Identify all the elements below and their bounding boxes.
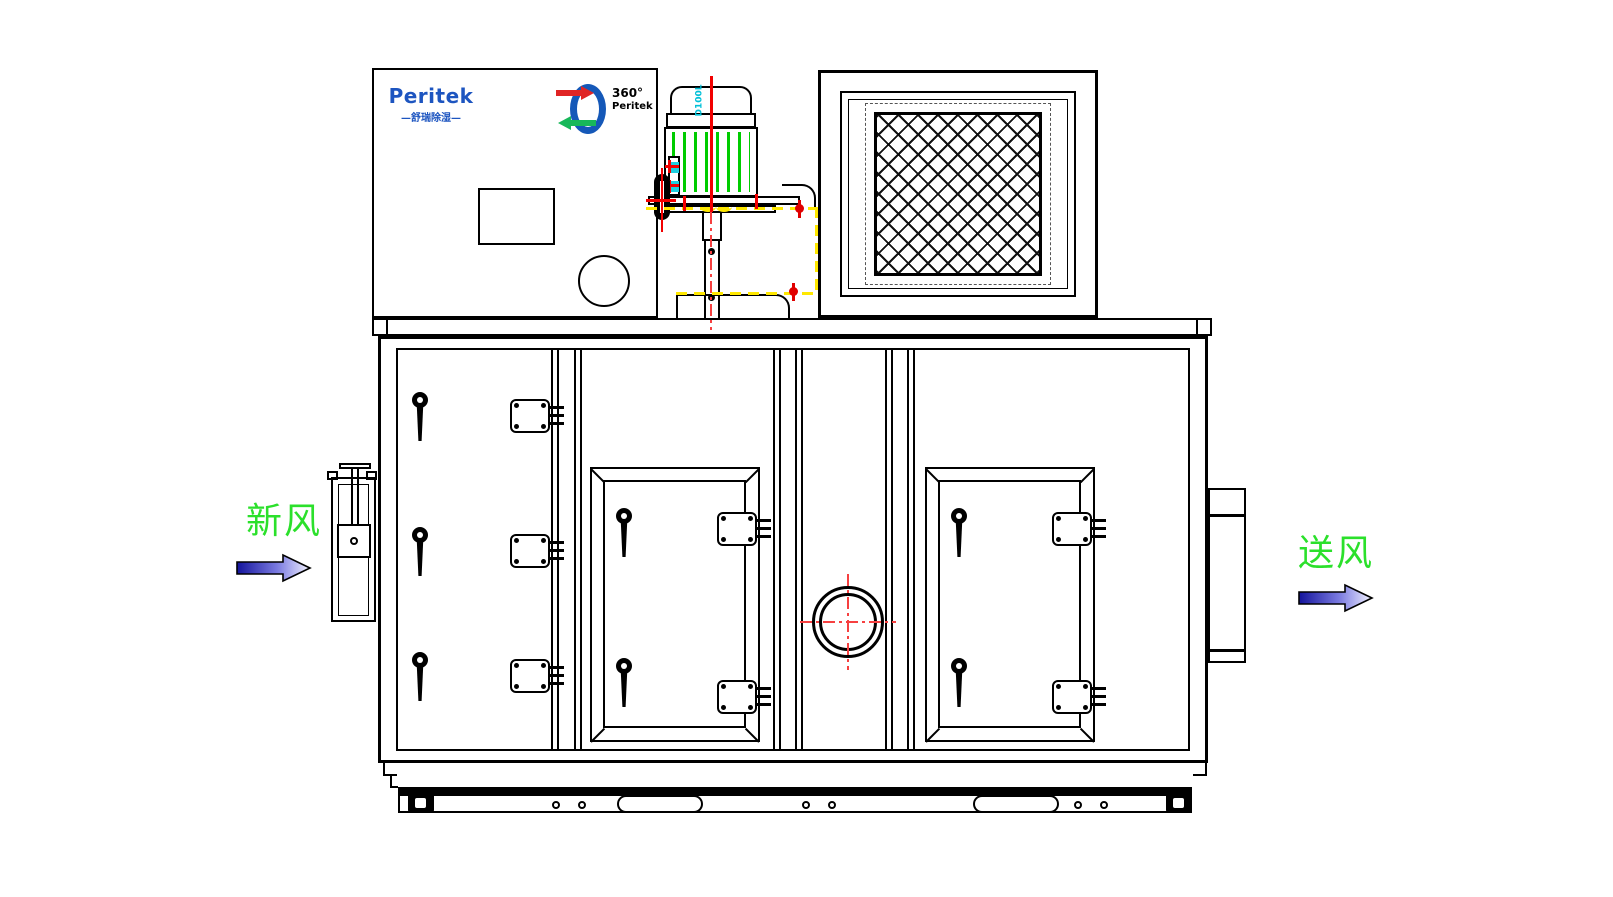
red-tick-base-left bbox=[683, 196, 686, 211]
hinge-block bbox=[510, 399, 550, 433]
anchor-hole bbox=[1074, 801, 1082, 809]
drive-shaft-housing bbox=[702, 211, 722, 241]
latch-handle bbox=[412, 652, 428, 702]
hinge-block bbox=[1052, 680, 1092, 714]
red-bolt-top bbox=[795, 200, 804, 222]
latch-handle bbox=[616, 508, 632, 558]
brand-tagline: —舒瑞除湿— bbox=[386, 109, 476, 124]
damper-flange-right bbox=[366, 471, 377, 480]
dehumidifier-elevation-drawing: Peritek —舒瑞除湿— 360° Peritek D100L bbox=[0, 0, 1613, 897]
latch-handle bbox=[412, 527, 428, 577]
motor-centerline-solid bbox=[710, 76, 713, 212]
hinge-block bbox=[510, 659, 550, 693]
fresh-air-arrow-icon bbox=[236, 552, 312, 584]
cyan-marker-lower bbox=[671, 181, 679, 192]
red-bolt-bottom bbox=[789, 283, 798, 305]
port-centerline-vertical bbox=[847, 574, 849, 670]
divider-line bbox=[580, 350, 582, 749]
brand-logo: Peritek —舒瑞除湿— bbox=[386, 84, 476, 124]
divider-line bbox=[801, 350, 803, 749]
forklift-slot-right bbox=[973, 795, 1059, 813]
filter-mesh bbox=[874, 112, 1042, 276]
outlet-duct-flange-bottom bbox=[1208, 649, 1246, 652]
foot-bracket-right-hole bbox=[1173, 798, 1184, 808]
cabinet-top-rail bbox=[372, 318, 1212, 336]
rotor-degrees-label: 360° bbox=[612, 86, 643, 100]
belt-arc-left bbox=[700, 202, 716, 212]
base-step-left-2 bbox=[390, 776, 398, 788]
anchor-hole bbox=[802, 801, 810, 809]
red-tick-base-right bbox=[755, 194, 758, 209]
latch-handle bbox=[616, 658, 632, 708]
brand-name: Peritek bbox=[386, 84, 476, 108]
hinge-block bbox=[1052, 512, 1092, 546]
belt-arc-right bbox=[716, 202, 732, 212]
red-tick-v1 bbox=[668, 160, 671, 173]
rotor-brand-label: Peritek bbox=[612, 101, 653, 112]
divider-line bbox=[891, 350, 893, 749]
outlet-duct-flange-top bbox=[1208, 514, 1246, 517]
divider-line bbox=[779, 350, 781, 749]
damper-actuator-hole bbox=[350, 537, 358, 545]
motor-model-label: D100L bbox=[695, 81, 706, 117]
divider-line bbox=[795, 350, 797, 749]
base-rail bbox=[398, 796, 1192, 813]
rotor-outlet-arrow-icon bbox=[556, 116, 596, 130]
hinge-block bbox=[510, 534, 550, 568]
tension-handle-cross-tick bbox=[646, 199, 676, 202]
divider-line bbox=[773, 350, 775, 749]
top-rail-end-tab-left bbox=[372, 318, 388, 336]
divider-line bbox=[913, 350, 915, 749]
motor-centerline-dashed bbox=[710, 212, 712, 330]
forklift-slot-left bbox=[617, 795, 703, 813]
control-box-outline bbox=[478, 188, 555, 245]
divider-line bbox=[574, 350, 576, 749]
divider-line bbox=[907, 350, 909, 749]
latch-handle bbox=[951, 658, 967, 708]
latch-handle bbox=[951, 508, 967, 558]
anchor-hole bbox=[578, 801, 586, 809]
inspection-port-circle bbox=[578, 255, 630, 307]
base-step-right-1 bbox=[1193, 763, 1207, 776]
top-rail-end-tab-right bbox=[1196, 318, 1212, 336]
service-envelope-right bbox=[815, 207, 818, 295]
service-envelope-top bbox=[646, 207, 818, 210]
rotor-wheel-logo: 360° Peritek bbox=[554, 78, 664, 138]
fresh-air-label: 新风 bbox=[246, 504, 322, 540]
hinge-block bbox=[717, 680, 757, 714]
anchor-hole bbox=[552, 801, 560, 809]
damper-flange-left bbox=[327, 471, 338, 480]
supply-air-arrow-icon bbox=[1298, 582, 1374, 614]
hinge-block bbox=[717, 512, 757, 546]
cyan-marker-upper bbox=[671, 162, 679, 173]
rotor-inlet-arrow-icon bbox=[556, 86, 596, 100]
anchor-hole bbox=[1100, 801, 1108, 809]
latch-handle bbox=[412, 392, 428, 442]
supply-air-label: 送风 bbox=[1298, 536, 1374, 572]
roof-curb bbox=[676, 294, 790, 318]
anchor-hole bbox=[828, 801, 836, 809]
base-top-bar bbox=[398, 787, 1192, 796]
base-step-left-1 bbox=[383, 763, 397, 776]
divider-line bbox=[885, 350, 887, 749]
foot-bracket-left-hole bbox=[415, 798, 426, 808]
